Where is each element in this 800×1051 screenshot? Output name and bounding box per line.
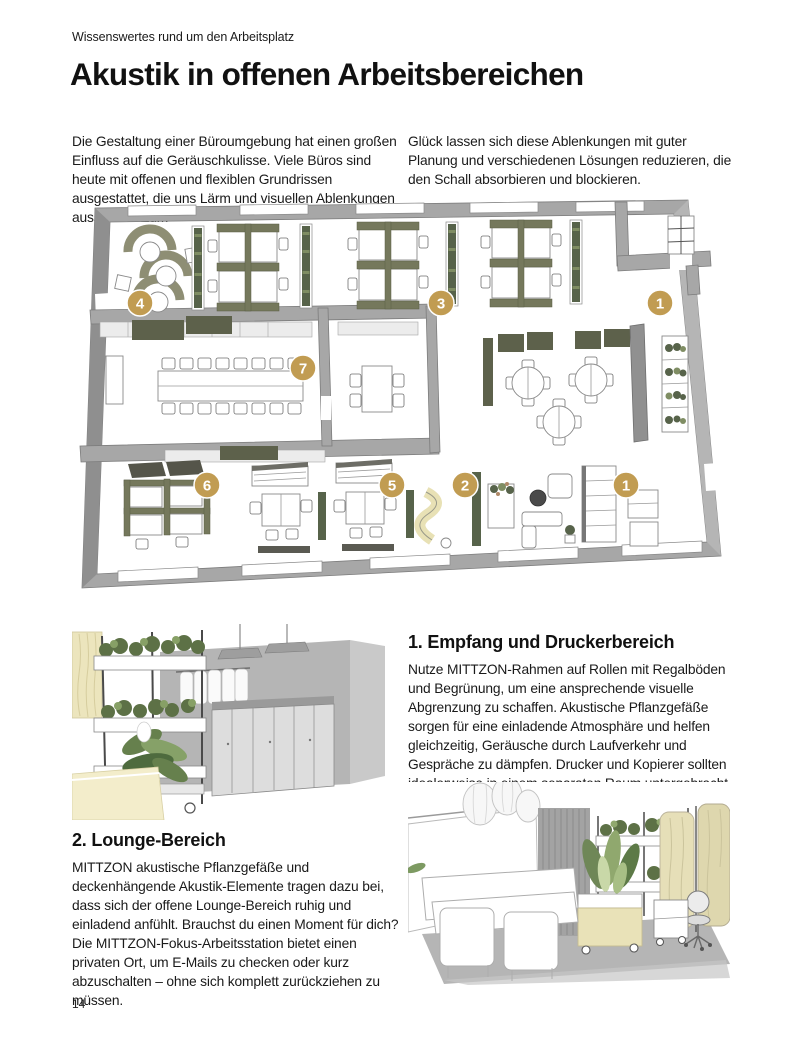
plan-badge-4: 4 bbox=[127, 290, 153, 316]
plan-badge-3: 3 bbox=[428, 290, 454, 316]
page-title: Akustik in offenen Arbeitsbereichen bbox=[70, 56, 583, 93]
svg-text:3: 3 bbox=[437, 296, 445, 313]
plan-meeting-rooms bbox=[80, 304, 440, 462]
office-render-right bbox=[408, 782, 730, 985]
svg-text:1: 1 bbox=[656, 296, 664, 313]
section-lounge: 2. Lounge-Bereich MITTZON akustische Pfl… bbox=[72, 830, 402, 1010]
intro-paragraph-right: Glück lassen sich diese Ablenkungen mit … bbox=[408, 132, 738, 189]
catalog-page: Wissenswertes rund um den Arbeitsplatz A… bbox=[0, 0, 800, 1051]
svg-text:6: 6 bbox=[203, 478, 211, 495]
svg-text:5: 5 bbox=[388, 478, 396, 495]
plan-badge-6: 6 bbox=[194, 472, 220, 498]
floor-plan-svg: 43176521 bbox=[70, 196, 730, 614]
section-empfang-heading: 1. Empfang und Druckerbereich bbox=[408, 632, 734, 653]
office-render-right-svg bbox=[408, 782, 730, 985]
svg-text:1: 1 bbox=[622, 478, 630, 495]
office-render-left-svg bbox=[72, 624, 385, 820]
svg-text:7: 7 bbox=[299, 361, 307, 378]
page-number: 14 bbox=[72, 997, 85, 1011]
svg-text:4: 4 bbox=[136, 296, 145, 313]
plan-badge-2: 2 bbox=[452, 472, 478, 498]
plan-badge-1: 1 bbox=[613, 472, 639, 498]
plan-badge-5: 5 bbox=[379, 472, 405, 498]
plan-desk-area bbox=[115, 220, 582, 312]
plan-badge-7: 7 bbox=[290, 355, 316, 381]
plan-printer-room bbox=[615, 202, 711, 295]
section-lounge-body: MITTZON akustische Pflanzgefäße und deck… bbox=[72, 858, 402, 1010]
page-eyebrow: Wissenswertes rund um den Arbeitsplatz bbox=[72, 30, 294, 44]
plan-badge-1: 1 bbox=[647, 290, 673, 316]
svg-text:2: 2 bbox=[461, 478, 469, 495]
plan-cafe-area bbox=[483, 324, 688, 445]
floor-plan-illustration: 43176521 bbox=[70, 196, 730, 614]
office-render-left bbox=[72, 624, 385, 820]
section-lounge-heading: 2. Lounge-Bereich bbox=[72, 830, 402, 851]
